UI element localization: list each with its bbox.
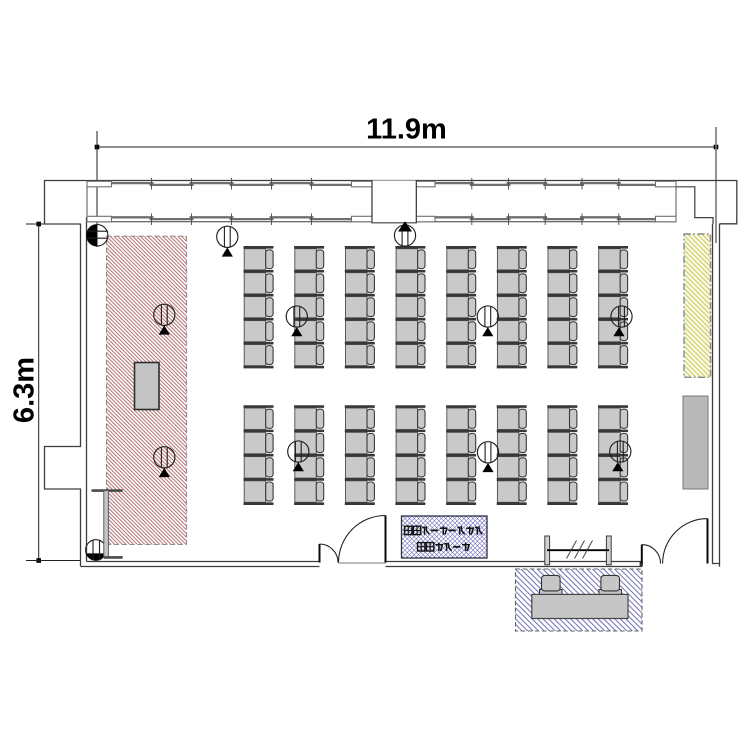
svg-text:11.9m: 11.9m <box>366 114 447 146</box>
svg-text:6.3m: 6.3m <box>9 357 41 423</box>
